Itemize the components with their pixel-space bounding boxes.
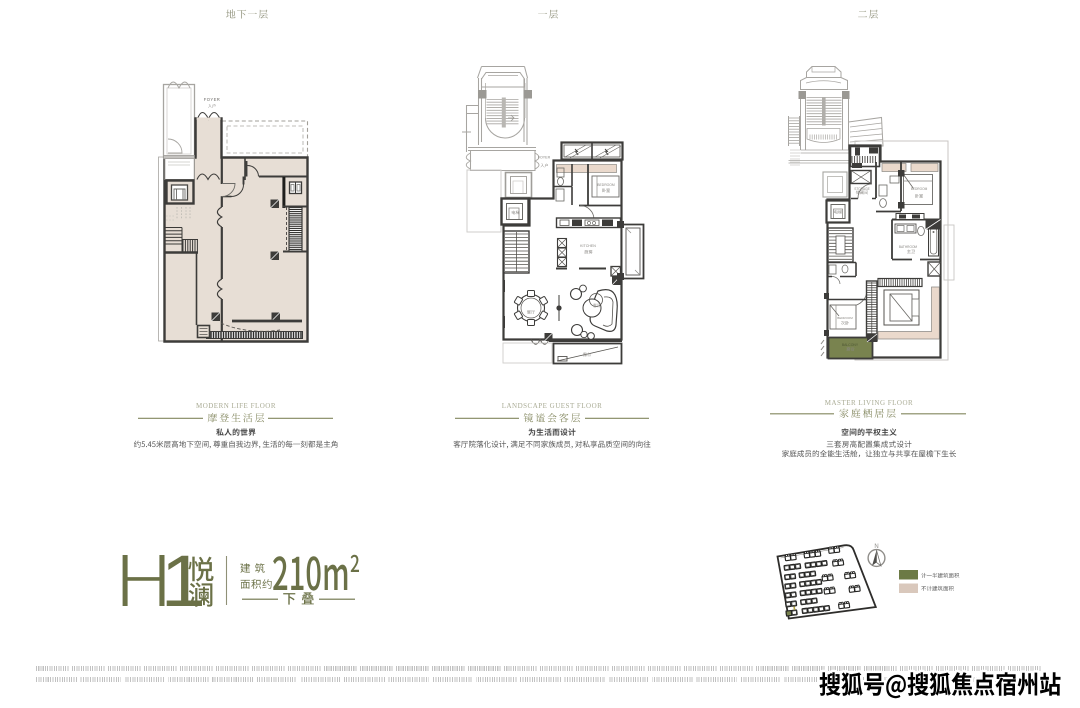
svg-text:BEDROOM: BEDROOM [911,187,928,191]
svg-text:BEDROOM: BEDROOM [837,316,853,320]
svg-text:STORAGE: STORAGE [854,187,870,191]
svg-text:FOYER: FOYER [204,97,220,102]
svg-text:BATHROOM: BATHROOM [899,245,918,249]
svg-text:N: N [874,544,878,550]
svg-text:FOYER: FOYER [538,156,551,160]
svg-text:BEDROOM: BEDROOM [597,183,615,187]
svg-text:KITCHEN: KITCHEN [580,244,596,248]
svg-text:BALCONY: BALCONY [842,343,859,347]
